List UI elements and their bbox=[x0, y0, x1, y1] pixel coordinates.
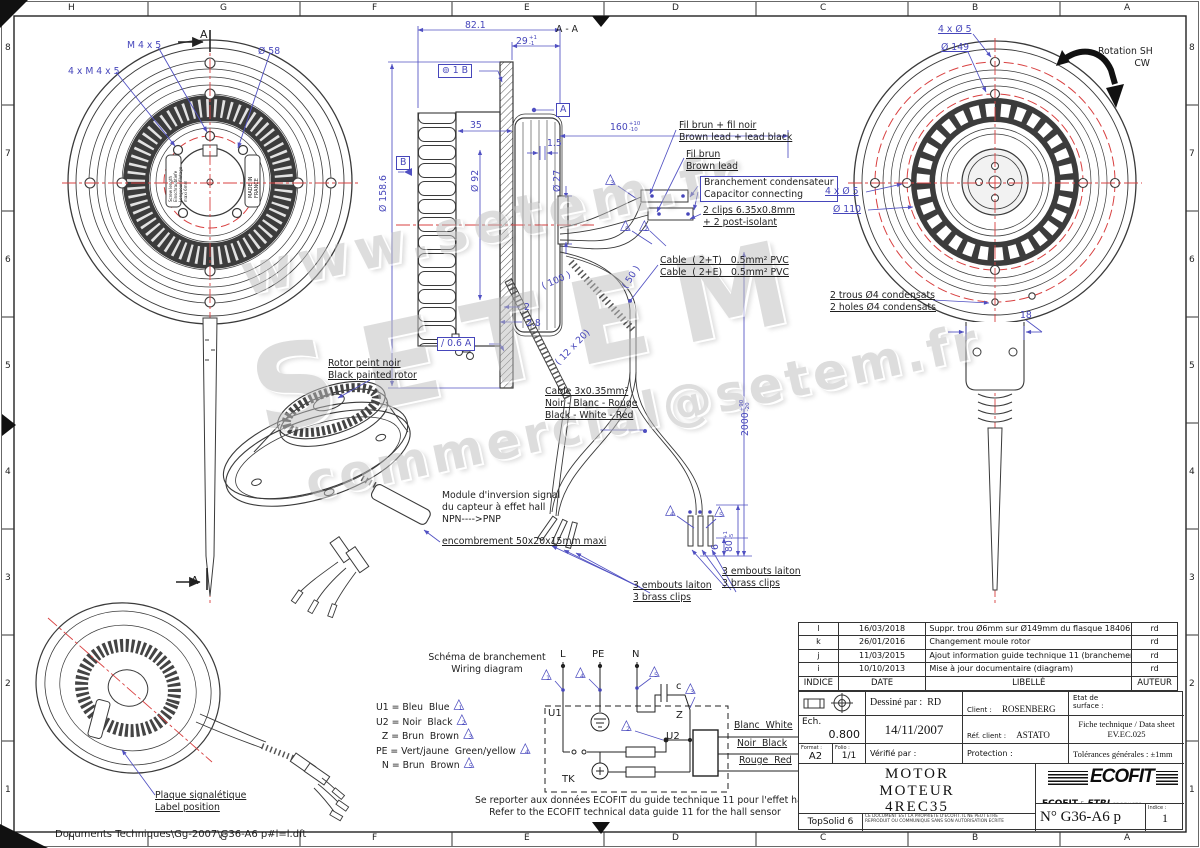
dim-2000: 2000+90-20 bbox=[740, 400, 752, 436]
label-rotation: Rotation SH CW bbox=[1098, 46, 1150, 70]
label-u2: U2 bbox=[666, 731, 680, 744]
frame-letter-bottom: H bbox=[68, 833, 75, 843]
dim-80: 80+1-5 bbox=[724, 531, 736, 552]
ref-triangle-4: △4 bbox=[575, 668, 591, 681]
label-u1: U1 bbox=[548, 708, 562, 721]
frame-number-right: 4 bbox=[1189, 467, 1195, 477]
note-fil-brun: Fil brun Brown lead bbox=[686, 149, 738, 173]
client-ref-cell: Réf. client : ASTATO bbox=[963, 716, 1069, 744]
datasheet-ref: EV.EC.025 bbox=[1069, 729, 1184, 739]
ref-triangle-1: △1 bbox=[541, 670, 557, 683]
client-ref-label: Réf. client : bbox=[967, 732, 1006, 740]
format-value: A2 bbox=[799, 751, 832, 762]
format-label: Format : bbox=[799, 744, 832, 751]
label-tk: TK bbox=[562, 774, 575, 787]
dim-dia110: Ø 110 bbox=[833, 204, 861, 216]
format-cell: Format : A2 bbox=[799, 744, 833, 764]
frame-number-left: 1 bbox=[5, 785, 11, 795]
terminal-n: N bbox=[632, 649, 639, 662]
label-section-aa: A - A bbox=[556, 24, 578, 36]
frame-number-left: 8 bbox=[5, 43, 11, 53]
revision-header-libelle: LIBELLÉ bbox=[926, 677, 1132, 690]
frame-letter-bottom: C bbox=[820, 833, 826, 843]
surface-state-cell: Etat de surface : bbox=[1069, 692, 1184, 716]
scale-cell: Ech. 0.800 bbox=[799, 716, 866, 744]
bottom-view bbox=[12, 577, 349, 820]
revision-libelle: Mise à jour documentaire (diagram) bbox=[926, 663, 1132, 675]
revision-indice: k bbox=[799, 636, 839, 648]
note-embouts-right: 3 embouts laiton 3 brass clips bbox=[722, 566, 801, 590]
wire-noir: Noir Black bbox=[737, 738, 787, 750]
dim-4xdia5-top: 4 x Ø 5 bbox=[938, 24, 972, 36]
frame-number-left: 5 bbox=[5, 361, 11, 371]
revision-libelle: Suppr. trou Ø6mm sur Ø149mm du flasque 1… bbox=[926, 623, 1132, 635]
terminal-pe: PE bbox=[592, 649, 604, 662]
legend-row: U2 = Noir Black△2 bbox=[376, 715, 472, 728]
revision-indice: l bbox=[799, 623, 839, 635]
section-a-top: A bbox=[200, 28, 208, 42]
datasheet-cell: Fiche technique / Data sheet EV.EC.025 bbox=[1069, 716, 1184, 744]
client-cell: Client : ROSENBERG France bbox=[963, 692, 1069, 716]
revision-table: l16/03/2018Suppr. trou Ø6mm sur Ø149mm d… bbox=[798, 622, 1178, 691]
revision-row: i10/10/2013Mise à jour documentaire (dia… bbox=[799, 663, 1177, 676]
drawn-by-cell: Dessiné par : RD bbox=[866, 692, 963, 716]
note-2trous: 2 trous Ø4 condensats 2 holes Ø4 condens… bbox=[830, 290, 936, 314]
file-path: Documents Techniques\Gg-2007\G36-A6 p#l=… bbox=[55, 829, 306, 842]
frame-number-right: 8 bbox=[1189, 43, 1195, 53]
label-c: c bbox=[676, 681, 682, 694]
title-block: Dessiné par : RD Client : ROSENBERG Fran… bbox=[798, 691, 1183, 830]
datasheet-label: Fiche technique / Data sheet bbox=[1069, 719, 1184, 729]
legend-row: U1 = Bleu Blue△1 bbox=[376, 700, 468, 713]
indice-value: 1 bbox=[1146, 811, 1184, 826]
revision-date: 10/10/2013 bbox=[839, 663, 927, 675]
dim-m4x5: M 4 x 5 bbox=[127, 40, 161, 52]
client-label: Client : bbox=[967, 706, 992, 714]
note-plaque: Plaque signalétique Label position bbox=[155, 790, 246, 814]
frame-letter-bottom: E bbox=[524, 833, 530, 843]
terminal-l: L bbox=[560, 649, 566, 662]
note-rotor: Rotor peint noir Black painted rotor bbox=[328, 358, 417, 382]
date-cell: 14/11/2007 bbox=[866, 716, 963, 744]
note-hall: Se reporter aux données ECOFIT du guide … bbox=[475, 795, 795, 819]
rear-view bbox=[848, 34, 1142, 606]
dim-dia58: Ø 58 bbox=[258, 46, 280, 58]
plate-text-left: Screw length Einschraubtiefe Longueur fi… bbox=[168, 167, 188, 202]
revision-auteur: rd bbox=[1132, 650, 1177, 662]
ref-triangle-4: △4 bbox=[665, 506, 681, 519]
revision-auteur: rd bbox=[1132, 636, 1177, 648]
datum-a-flag: A bbox=[556, 103, 570, 117]
frame-letter-bottom: A bbox=[1124, 833, 1130, 843]
product-line-1: MOTOR bbox=[799, 766, 1035, 783]
frame-letter-top: D bbox=[672, 3, 679, 13]
frame-letter-bottom: D bbox=[672, 833, 679, 843]
frame-letter-bottom: B bbox=[972, 833, 978, 843]
gdt-frame: ⊚ 1 B bbox=[438, 64, 472, 78]
drawn-by-value: RD bbox=[927, 697, 941, 708]
revision-row: l16/03/2018Suppr. trou Ø6mm sur Ø149mm d… bbox=[799, 623, 1177, 636]
frame-number-left: 6 bbox=[5, 255, 11, 265]
dim-2: 2 bbox=[524, 302, 530, 314]
datum-b-flag: B bbox=[396, 156, 410, 170]
frame-number-right: 2 bbox=[1189, 679, 1195, 689]
revision-auteur: rd bbox=[1132, 623, 1177, 635]
dim-dia158-6: Ø 158.6 bbox=[378, 175, 390, 212]
wire-rouge: Rouge Red bbox=[739, 755, 792, 767]
note-module: Module d'inversion signal du capteur à e… bbox=[442, 490, 560, 526]
frame-letter-top: F bbox=[372, 3, 377, 13]
ref-triangle-2: △2 bbox=[621, 721, 637, 734]
front-view bbox=[62, 30, 358, 604]
revision-auteur: rd bbox=[1132, 663, 1177, 675]
note-cable3x: Cable 3x0.35mm² Noir - Blanc - Rouge Bla… bbox=[545, 386, 637, 422]
tolerances-cell: Tolérances générales : ±1mm bbox=[1069, 744, 1184, 764]
dim-18: 18 bbox=[1020, 310, 1032, 322]
checked-by-cell: Vérifié par : bbox=[866, 744, 963, 764]
revision-header-indice: INDICE bbox=[799, 677, 839, 690]
label-z: Z bbox=[676, 710, 683, 723]
dim-dia27: Ø 27 bbox=[552, 170, 564, 192]
revision-row: k26/01/2016Changement moule rotorrd bbox=[799, 636, 1177, 649]
revision-date: 26/01/2016 bbox=[839, 636, 927, 648]
dim-82-1: 82.1 bbox=[465, 20, 486, 32]
note-module-enc: encombrement 50x20x15mm maxi bbox=[442, 536, 606, 548]
ref-triangle-5: △5 bbox=[649, 667, 665, 680]
revision-date: 11/03/2015 bbox=[839, 650, 927, 662]
frame-number-left: 3 bbox=[5, 573, 11, 583]
projection-symbol-icon bbox=[799, 692, 859, 714]
cad-software-cell: TopSolid 6 bbox=[799, 814, 863, 831]
frame-letter-top: C bbox=[820, 3, 826, 13]
drawn-by-label: Dessiné par : bbox=[870, 697, 922, 708]
dim-4xdia5-mid: 4 x Ø 5 bbox=[825, 186, 859, 198]
folio-value: 1/1 bbox=[833, 751, 865, 761]
dim-160: 160+10-10 bbox=[610, 122, 640, 134]
revision-libelle: Changement moule rotor bbox=[926, 636, 1132, 648]
dim-35: 35 bbox=[470, 120, 482, 132]
revision-header-date: DATE bbox=[839, 677, 927, 690]
dim-4xm4x5: 4 x M 4 x 5 bbox=[68, 66, 120, 78]
product-line-2: MOTEUR bbox=[799, 783, 1035, 800]
note-cable-2t: Cable ( 2+T) 0.5mm² PVC Cable ( 2+E) 0.5… bbox=[660, 255, 789, 279]
protection-cell: Protection : bbox=[963, 744, 1069, 764]
disclaimer-cell: CE DOCUMENT EST LA PROPRIETE D'ECOFIT. I… bbox=[863, 814, 1036, 831]
frame-number-right: 7 bbox=[1189, 149, 1195, 159]
client-ref-value: ASTATO bbox=[1016, 730, 1050, 740]
runout-frame: / 0.6 A bbox=[437, 337, 475, 351]
dim-6: 6 bbox=[710, 544, 722, 550]
note-embouts-left: 3 embouts laiton 3 brass clips bbox=[633, 580, 712, 604]
disclaimer-line-2: REPRODUIT OU COMMUNIQUE SANS SON AUTORIS… bbox=[865, 820, 1033, 825]
note-2clips: 2 clips 6.35x0.8mm + 2 post-isolant bbox=[703, 205, 795, 229]
frame-letter-top: G bbox=[220, 3, 227, 13]
product-title-cell: MOTOR MOTEUR 4REC35 bbox=[799, 764, 1036, 814]
ref-triangle-5: △5 bbox=[620, 221, 636, 234]
frame-number-right: 6 bbox=[1189, 255, 1195, 265]
frame-number-right: 3 bbox=[1189, 573, 1195, 583]
legend-row: N = Brun Brown△5 bbox=[376, 758, 479, 771]
section-a-bottom: A bbox=[191, 574, 199, 588]
folio-label: Folio : bbox=[833, 744, 865, 751]
frame-number-right: 1 bbox=[1189, 785, 1195, 795]
wire-blanc: Blanc White bbox=[734, 720, 793, 732]
frame-number-left: 4 bbox=[5, 467, 11, 477]
frame-letter-top: H bbox=[68, 3, 75, 13]
plate-text-right: MADE IN FRANCE bbox=[248, 176, 261, 198]
ref-triangle-2: △2 bbox=[639, 221, 655, 234]
indice-label: Indice : bbox=[1146, 804, 1184, 811]
technical-drawing-sheet: l16/03/2018Suppr. trou Ø6mm sur Ø149mm d… bbox=[0, 0, 1200, 848]
revision-header-auteur: AUTEUR bbox=[1132, 677, 1177, 690]
dim-1-5: 1.5 bbox=[547, 138, 562, 150]
dim-dia149: Ø 149 bbox=[941, 42, 969, 54]
ecofit-logo-cell: ECOFIT ECOFIT&ETRIPRODUCTS bbox=[1036, 764, 1184, 804]
label-schema: Schéma de branchement Wiring diagram bbox=[428, 652, 546, 676]
revision-header-row: INDICEDATELIBELLÉAUTEUR bbox=[799, 677, 1177, 690]
scale-label: Ech. bbox=[802, 717, 821, 727]
projection-symbol-cell bbox=[799, 692, 866, 716]
ref-triangle-3: △3 bbox=[685, 684, 701, 697]
legend-row: PE = Vert/jaune Green/yellow△4 bbox=[376, 744, 535, 757]
frame-letter-top: A bbox=[1124, 3, 1130, 13]
frame-number-right: 5 bbox=[1189, 361, 1195, 371]
frame-letter-bottom: F bbox=[372, 833, 377, 843]
doc-number-cell: N° G36-A6 p bbox=[1036, 804, 1146, 831]
frame-letter-top: B bbox=[972, 3, 978, 13]
indice-cell: Indice : 1 bbox=[1146, 804, 1184, 831]
legend-row: Z = Brun Brown△3 bbox=[376, 729, 478, 742]
ref-triangle-3: △3 bbox=[605, 175, 621, 188]
dim-29: 29+1-1 bbox=[516, 36, 537, 48]
frame-letter-top: E bbox=[524, 3, 530, 13]
note-fil-brun-noir: Fil brun + fil noir Brown lead + lead bl… bbox=[679, 120, 792, 144]
revision-date: 16/03/2018 bbox=[839, 623, 927, 635]
revision-indice: j bbox=[799, 650, 839, 662]
frame-number-left: 2 bbox=[5, 679, 11, 689]
dim-2-8: 2.8 bbox=[526, 318, 541, 330]
scale-value: 0.800 bbox=[829, 728, 861, 741]
revision-indice: i bbox=[799, 663, 839, 675]
folio-cell: Folio : 1/1 bbox=[833, 744, 866, 764]
frame-number-left: 7 bbox=[5, 149, 11, 159]
revision-libelle: Ajout information guide technique 11 (br… bbox=[926, 650, 1132, 662]
note-branchement: Branchement condensateur Capacitor conne… bbox=[700, 176, 838, 202]
frame-letter-bottom: G bbox=[220, 833, 227, 843]
dim-dia92: Ø 92 bbox=[470, 170, 482, 192]
ecofit-wordmark: ECOFIT bbox=[1088, 766, 1156, 788]
product-line-3: 4REC35 bbox=[799, 799, 1035, 814]
revision-row: j11/03/2015Ajout information guide techn… bbox=[799, 650, 1177, 663]
ref-triangle-5: △5 bbox=[714, 507, 730, 520]
